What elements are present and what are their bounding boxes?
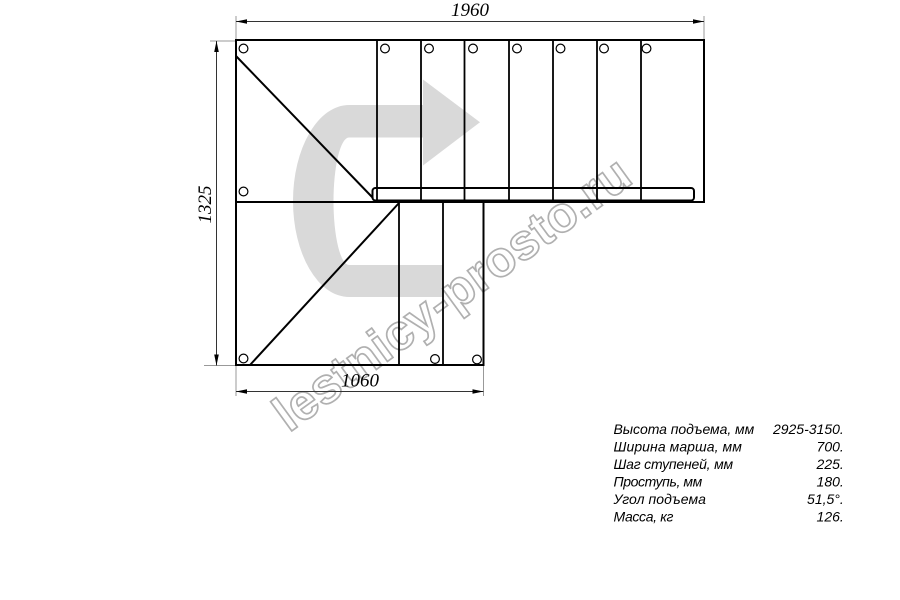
svg-text:Проступь, мм: Проступь, мм [614, 474, 703, 490]
svg-text:700.: 700. [817, 439, 844, 455]
svg-text:Ширина марша, мм: Ширина марша, мм [614, 439, 743, 455]
svg-text:126.: 126. [817, 509, 844, 525]
svg-text:1325: 1325 [195, 186, 216, 224]
svg-text:51,5°.: 51,5°. [807, 491, 844, 507]
svg-text:1960: 1960 [451, 0, 490, 21]
svg-text:180.: 180. [817, 474, 844, 490]
svg-text:1060: 1060 [341, 371, 380, 392]
svg-text:2925-3150.: 2925-3150. [772, 421, 844, 437]
svg-text:Высота подъема, мм: Высота подъема, мм [614, 421, 755, 437]
svg-text:Шаг ступеней, мм: Шаг ступеней, мм [614, 456, 734, 472]
svg-text:225.: 225. [816, 456, 844, 472]
svg-text:Угол подъема: Угол подъема [613, 491, 707, 507]
svg-text:Масса, кг: Масса, кг [614, 509, 674, 525]
